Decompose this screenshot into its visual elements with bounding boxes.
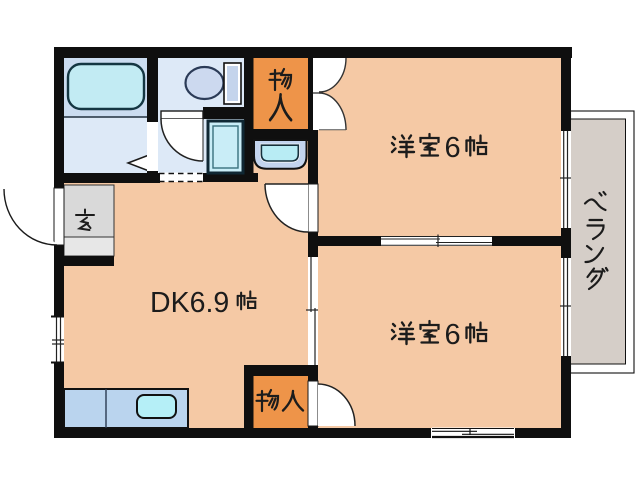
svg-text:6: 6 bbox=[445, 319, 461, 351]
svg-text:DK6.9: DK6.9 bbox=[150, 287, 229, 319]
svg-text:6: 6 bbox=[445, 132, 461, 164]
